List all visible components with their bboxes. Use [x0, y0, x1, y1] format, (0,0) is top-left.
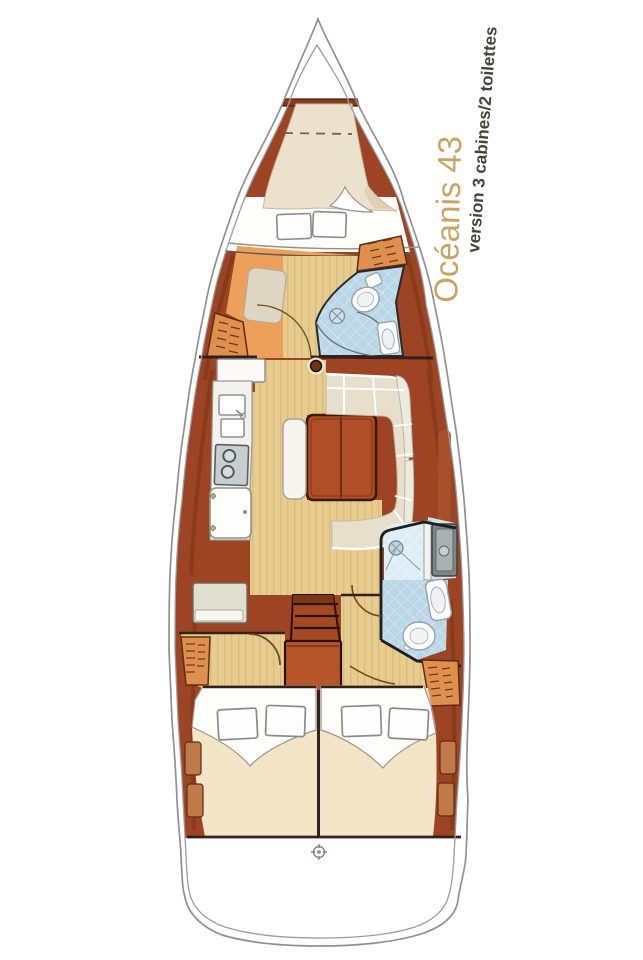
svg-text:Océanis 43: Océanis 43	[427, 135, 468, 303]
